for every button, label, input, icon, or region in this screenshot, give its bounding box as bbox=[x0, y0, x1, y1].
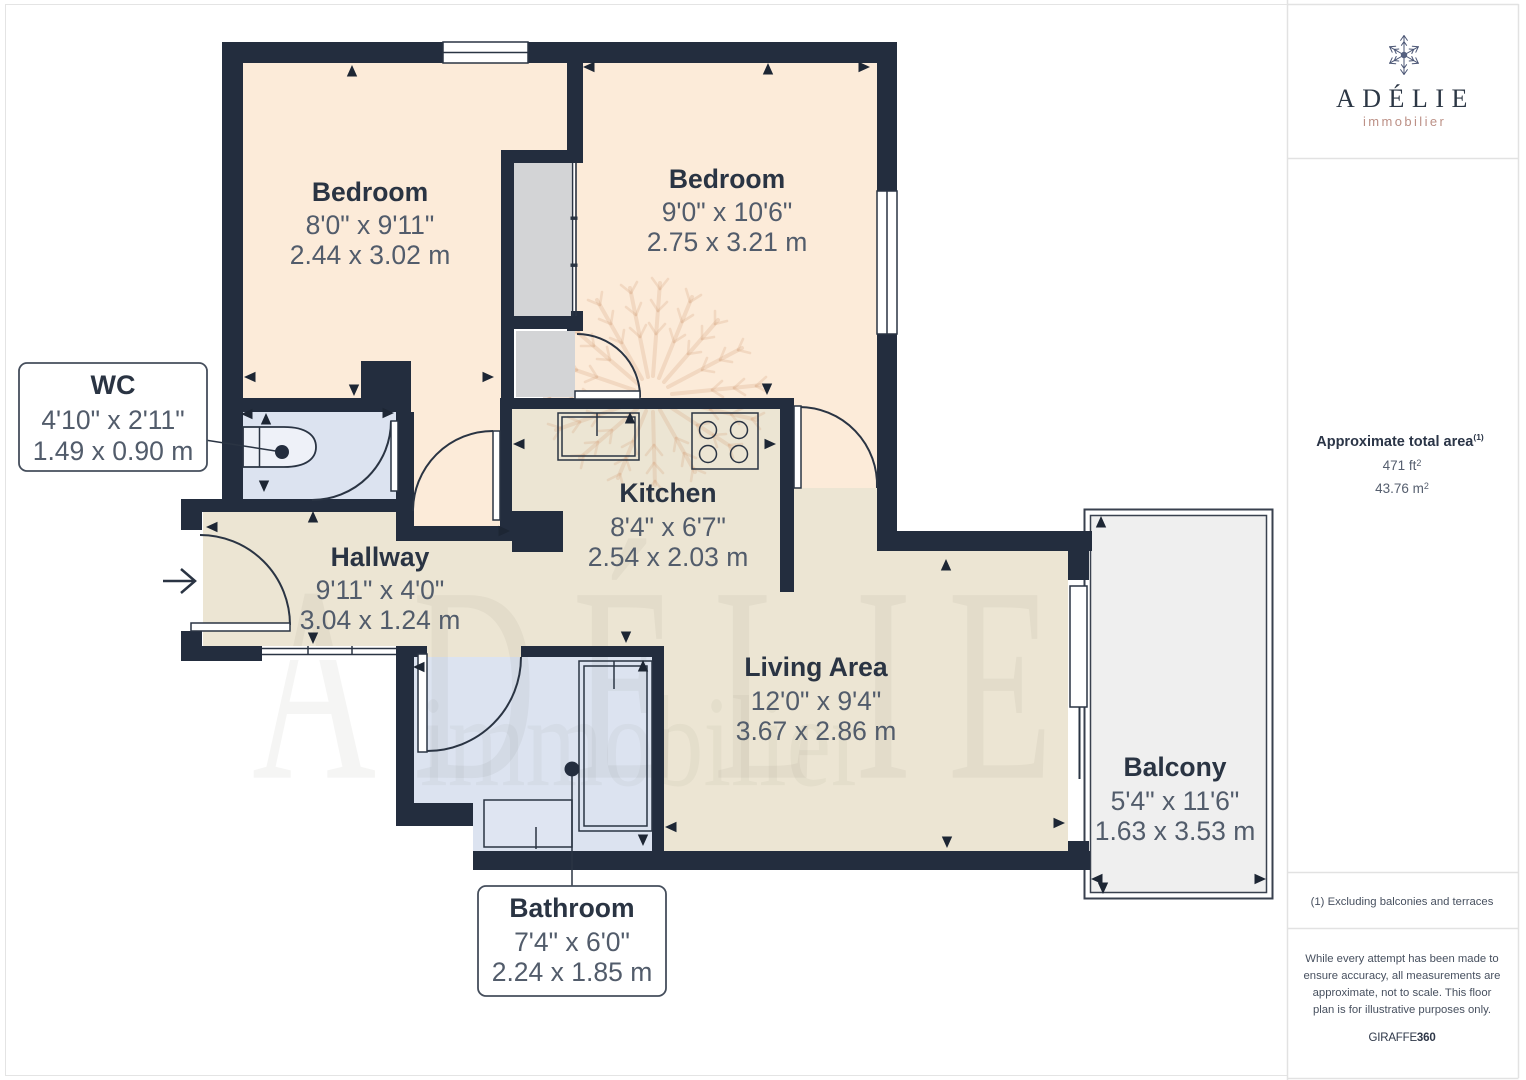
svg-text:8'0" x 9'11": 8'0" x 9'11" bbox=[306, 210, 435, 240]
svg-text:Approximate total area(1): Approximate total area(1) bbox=[1316, 432, 1484, 450]
svg-text:(1) Excluding balconies and te: (1) Excluding balconies and terraces bbox=[1311, 896, 1494, 908]
svg-text:2.24 x 1.85 m: 2.24 x 1.85 m bbox=[492, 957, 653, 987]
svg-text:Bathroom: Bathroom bbox=[509, 893, 634, 923]
svg-text:ensure accuracy, all measureme: ensure accuracy, all measurements are bbox=[1304, 970, 1501, 982]
svg-text:immobilier: immobilier bbox=[1363, 114, 1446, 129]
svg-text:GIRAFFE360: GIRAFFE360 bbox=[1368, 1032, 1435, 1044]
svg-text:3.04 x 1.24 m: 3.04 x 1.24 m bbox=[300, 605, 461, 635]
svg-text:Balcony: Balcony bbox=[1123, 752, 1226, 782]
svg-text:1.63 x 3.53 m: 1.63 x 3.53 m bbox=[1095, 816, 1256, 846]
svg-text:Bedroom: Bedroom bbox=[669, 164, 785, 194]
svg-text:Bedroom: Bedroom bbox=[312, 177, 428, 207]
svg-text:Living Area: Living Area bbox=[744, 652, 888, 682]
svg-text:2.75 x 3.21 m: 2.75 x 3.21 m bbox=[647, 227, 808, 257]
svg-text:9'11" x 4'0": 9'11" x 4'0" bbox=[316, 575, 445, 605]
svg-text:7'4" x 6'0": 7'4" x 6'0" bbox=[514, 927, 630, 957]
svg-text:2.54 x 2.03 m: 2.54 x 2.03 m bbox=[588, 542, 749, 572]
svg-text:2.44 x 3.02 m: 2.44 x 3.02 m bbox=[290, 240, 451, 270]
svg-text:43.76 m2: 43.76 m2 bbox=[1375, 481, 1429, 496]
svg-text:WC: WC bbox=[91, 370, 136, 400]
svg-text:Hallway: Hallway bbox=[331, 542, 430, 572]
svg-text:12'0" x 9'4": 12'0" x 9'4" bbox=[751, 686, 882, 716]
svg-text:While every attempt has been m: While every attempt has been made to bbox=[1305, 953, 1498, 965]
svg-text:9'0" x 10'6": 9'0" x 10'6" bbox=[662, 197, 793, 227]
svg-text:plan is for illustrative purpo: plan is for illustrative purposes only. bbox=[1313, 1004, 1491, 1016]
svg-text:Kitchen: Kitchen bbox=[619, 478, 716, 508]
svg-text:approximate, not to scale. Thi: approximate, not to scale. This floor bbox=[1313, 987, 1492, 999]
svg-text:1.49 x 0.90 m: 1.49 x 0.90 m bbox=[33, 436, 194, 466]
svg-text:5'4" x 11'6": 5'4" x 11'6" bbox=[1111, 786, 1240, 816]
svg-text:3.67 x 2.86 m: 3.67 x 2.86 m bbox=[736, 716, 897, 746]
svg-text:4'10" x 2'11": 4'10" x 2'11" bbox=[41, 405, 184, 435]
svg-text:471 ft2: 471 ft2 bbox=[1383, 458, 1422, 473]
svg-text:8'4" x 6'7": 8'4" x 6'7" bbox=[610, 512, 726, 542]
svg-text:ADÉLIE: ADÉLIE bbox=[1336, 84, 1475, 113]
